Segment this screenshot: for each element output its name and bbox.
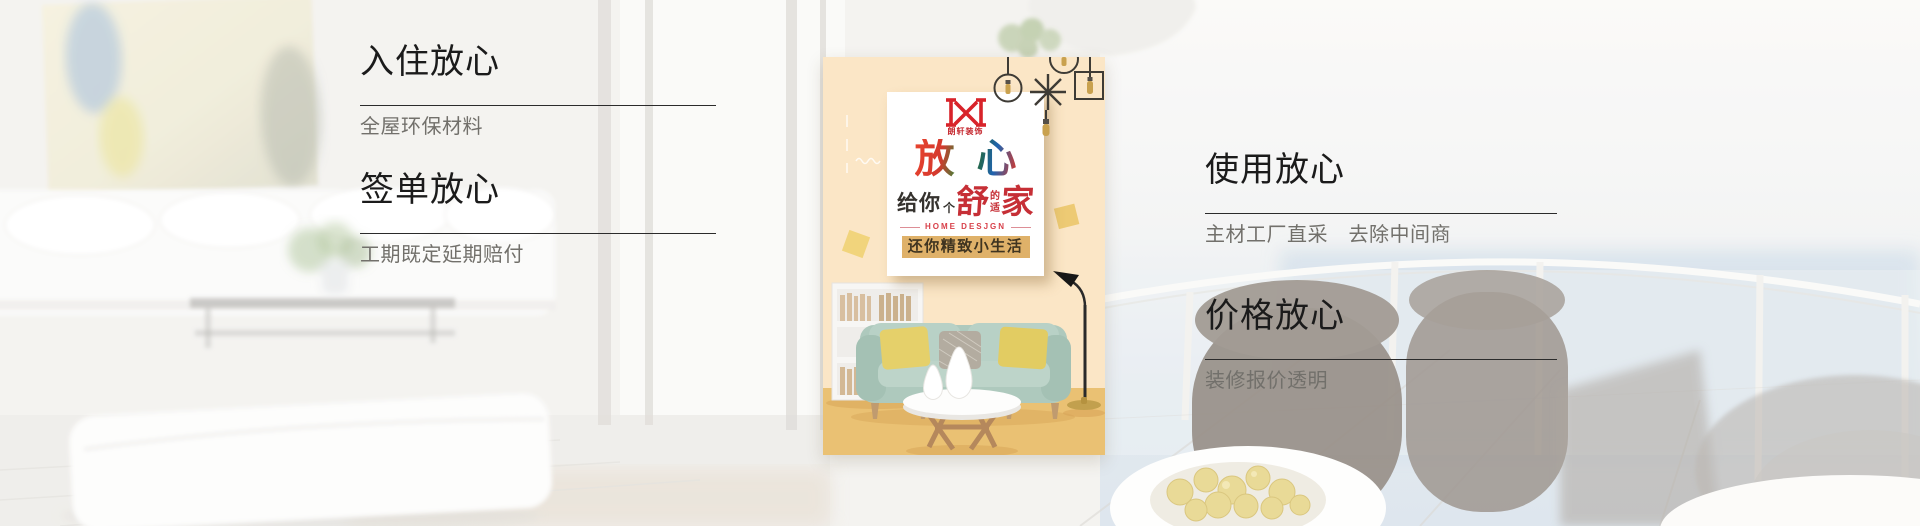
feature-subtitle: 主材工厂直采 去除中间商 (1205, 223, 1557, 247)
yellow-diamond (1054, 204, 1079, 229)
feature-block-occupancy: 入住放心 全屋环保材料 (360, 44, 716, 139)
yellow-pillow (879, 326, 930, 370)
feature-block-contract: 签单放心 工期既定延期赔付 (360, 172, 716, 267)
feature-block-materials: 使用放心 主材工厂直采 去除中间商 (1205, 152, 1557, 247)
yellow-pillow (998, 326, 1049, 369)
feature-subtitle: 工期既定延期赔付 (360, 243, 716, 267)
feature-subtitle: 装修报价透明 (1205, 369, 1557, 393)
feature-title: 价格放心 (1205, 298, 1557, 335)
feature-divider (1205, 359, 1557, 360)
feature-divider (1205, 213, 1557, 214)
subline-small: 个 (941, 202, 956, 218)
tagline-text: HOME DESJGN (925, 223, 1006, 231)
poster-slogan: 还你精致小生活 (902, 236, 1030, 258)
feature-title: 入住放心 (360, 44, 716, 81)
yellow-diamond (842, 230, 870, 258)
poster-tagline: HOME DESJGN (900, 223, 1031, 231)
feature-divider (360, 233, 716, 234)
feature-title: 签单放心 (360, 172, 716, 209)
star-lamp-icon (1030, 74, 1066, 110)
stack-bottom: 适 (990, 203, 1000, 215)
tagline-line (1011, 227, 1031, 228)
tagline-line (900, 227, 920, 228)
hero-banner: 入住放心 全屋环保材料 签单放心 工期既定延期赔付 使用放心 主材工厂直采 去除… (0, 0, 1920, 526)
feature-subtitle: 全屋环保材料 (360, 115, 716, 139)
feature-block-price: 价格放心 装修报价透明 (1205, 298, 1557, 393)
pendant-lights (823, 57, 1105, 197)
feature-divider (360, 105, 716, 106)
promo-poster: 朗轩装饰 放心 给你 个 舒 的 适 家 HOME DESJGN 还你精致小生活 (823, 57, 1105, 455)
feature-title: 使用放心 (1205, 152, 1557, 189)
